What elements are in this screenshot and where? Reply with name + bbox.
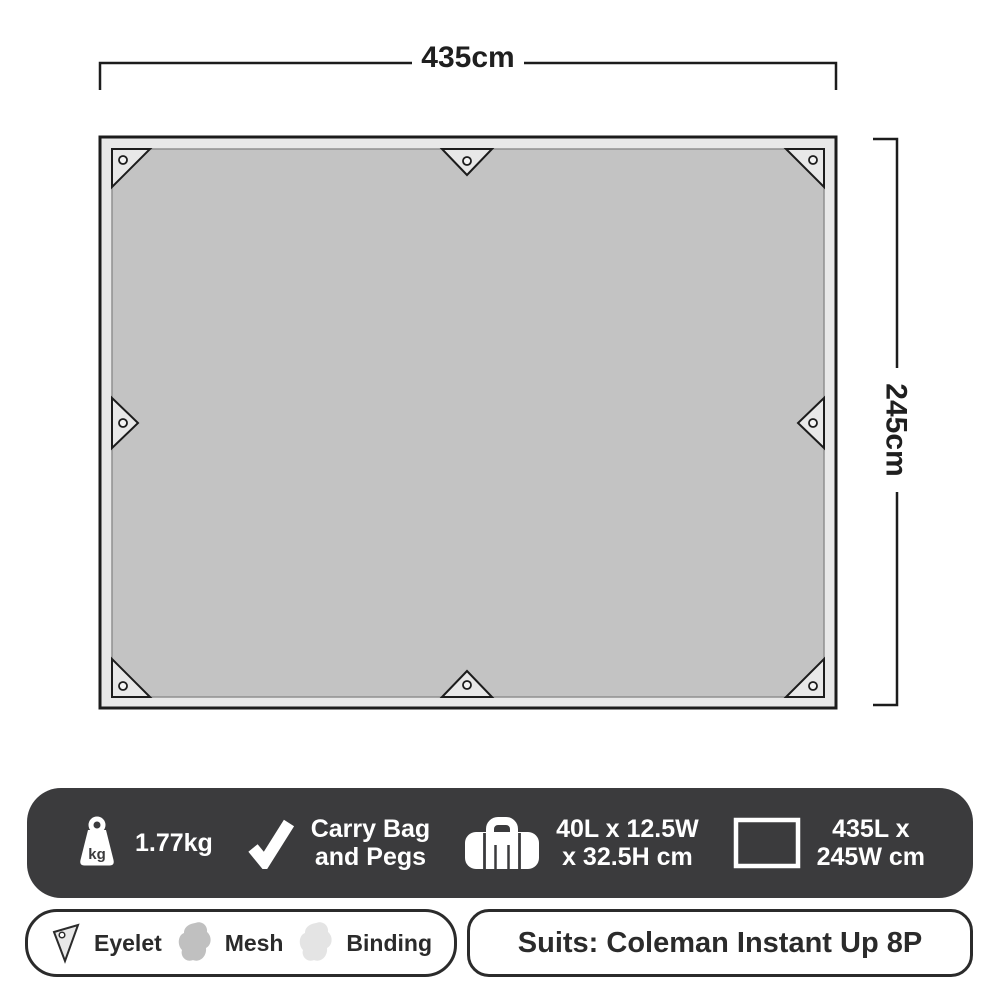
- checkmark-icon: [247, 817, 295, 869]
- feature-flat-size: 435L x 245W cm: [733, 815, 925, 871]
- flat-size-line2: 245W cm: [817, 843, 925, 871]
- included-text: Carry Bag and Pegs: [311, 815, 431, 871]
- eyelet-right-middle-icon: [809, 419, 817, 427]
- eyelet-top-right-icon: [809, 156, 817, 164]
- feature-weight: kg 1.77kg: [75, 816, 213, 870]
- packed-size-text: 40L x 12.5W x 32.5H cm: [556, 815, 699, 871]
- flat-size-rectangle-icon: [733, 817, 801, 869]
- eyelet-top-middle-icon: [463, 157, 471, 165]
- packed-size-line2: x 32.5H cm: [556, 843, 699, 871]
- eyelet-bottom-right-icon: [809, 682, 817, 690]
- legend: Eyelet Mesh Binding: [25, 909, 457, 977]
- packed-size-line1: 40L x 12.5W: [556, 815, 699, 843]
- feature-included: Carry Bag and Pegs: [247, 815, 431, 871]
- included-line1: Carry Bag: [311, 815, 431, 843]
- product-infographic: 435cm 245cm: [0, 0, 1000, 1000]
- legend-item-eyelet: Eyelet: [50, 921, 162, 965]
- weight-icon-label: kg: [88, 846, 106, 863]
- tarp-diagram: 435cm 245cm: [0, 0, 1000, 770]
- legend-eyelet-icon: [50, 921, 82, 965]
- eyelet-left-middle-icon: [119, 419, 127, 427]
- suits-label: Suits: Coleman Instant Up 8P: [518, 927, 922, 960]
- legend-eyelet-label: Eyelet: [94, 930, 162, 957]
- legend-binding-swatch: [298, 920, 334, 966]
- eyelet-bottom-left-icon: [119, 682, 127, 690]
- eyelet-bottom-middle-icon: [463, 681, 471, 689]
- legend-mesh-label: Mesh: [225, 930, 284, 957]
- legend-item-binding: Binding: [298, 920, 432, 966]
- legend-binding-label: Binding: [346, 930, 432, 957]
- tarp-mesh-panel: [112, 149, 824, 697]
- feature-bar: kg 1.77kg Carry Bag and Pegs: [27, 788, 973, 898]
- flat-size-text: 435L x 245W cm: [817, 815, 925, 871]
- feature-packed-size: 40L x 12.5W x 32.5H cm: [464, 815, 699, 871]
- legend-item-mesh: Mesh: [177, 920, 284, 966]
- included-line2: and Pegs: [311, 843, 431, 871]
- weight-kg-icon: kg: [75, 816, 119, 870]
- width-dimension-label: 435cm: [421, 41, 514, 74]
- flat-size-line1: 435L x: [817, 815, 925, 843]
- legend-mesh-swatch: [177, 920, 213, 966]
- eyelet-top-left-icon: [119, 156, 127, 164]
- height-dimension-label: 245cm: [880, 383, 913, 476]
- suits-box: Suits: Coleman Instant Up 8P: [467, 909, 973, 977]
- carry-bag-icon: [464, 816, 540, 870]
- weight-value: 1.77kg: [135, 829, 213, 857]
